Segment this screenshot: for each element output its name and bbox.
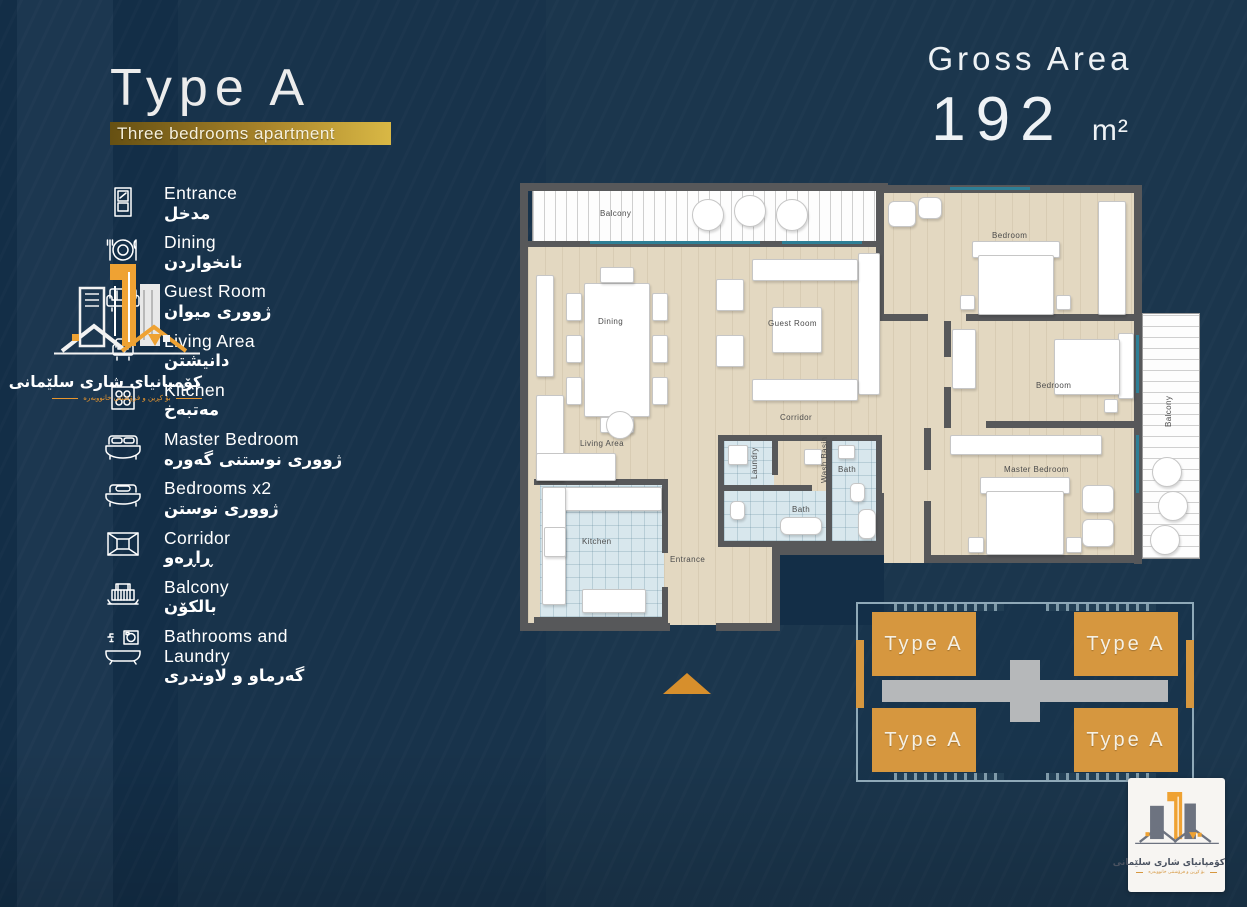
toilet <box>730 501 745 520</box>
balcony-right <box>1142 313 1200 559</box>
wardrobe <box>1098 201 1126 315</box>
legend-label-ku: ڕاڕەو <box>164 548 324 569</box>
balcony-chair <box>1150 525 1180 555</box>
tagline-line <box>52 398 78 399</box>
window <box>1136 435 1139 493</box>
unit-type-a-top-right: Type A <box>1074 612 1178 676</box>
dining-chair <box>566 293 582 321</box>
nightstand <box>1104 399 1118 413</box>
company-logo-graphic <box>52 256 202 366</box>
wardrobe <box>952 329 976 389</box>
legend-label-en: Bathrooms and Laundry <box>164 627 324 666</box>
bathtub <box>858 509 876 539</box>
gross-area-value: 192 m² <box>880 84 1180 155</box>
wall <box>772 547 780 631</box>
page-title: Type A <box>110 58 311 118</box>
bed-headboard <box>1118 333 1134 399</box>
wall <box>966 314 1142 321</box>
dining-chair <box>566 335 582 363</box>
bathtub-icon <box>98 627 148 665</box>
room-label-balcony-right: Balcony <box>1164 396 1173 427</box>
footprint-hatch <box>894 604 1004 611</box>
dining-chair <box>652 293 668 321</box>
double-bed-icon <box>98 430 148 460</box>
nightstand <box>1066 537 1082 553</box>
room-label-living-area: Living Area <box>580 439 624 448</box>
bathtub <box>780 517 822 535</box>
legend-row-master-bedroom: Master Bedroom ژووری نوستنی گەورە <box>98 430 398 470</box>
wall <box>772 435 778 475</box>
window <box>782 241 862 244</box>
company-name: کۆمپانیای شاری سلێمانی <box>52 373 202 391</box>
wall <box>1134 185 1142 321</box>
balcony-chair <box>1152 457 1182 487</box>
legend-row-bathrooms: Bathrooms and Laundry گەرماو و لاوندری <box>98 627 398 687</box>
tagline-line <box>176 398 202 399</box>
legend-label-en: Corridor <box>164 529 324 549</box>
room-label-laundry: Laundry <box>750 447 759 479</box>
wall <box>662 479 668 553</box>
wall <box>718 435 882 441</box>
legend-label-en: Entrance <box>164 184 324 204</box>
window <box>1136 335 1139 393</box>
wall <box>716 623 778 631</box>
legend-label-ku: مدخل <box>164 204 324 225</box>
tagline-text: بۆ کڕین و فرۆشتنی خانووبەرە <box>1148 870 1204 875</box>
balcony-chair <box>692 199 724 231</box>
wall <box>724 485 812 491</box>
room-label-kitchen: Kitchen <box>582 537 611 546</box>
nightstand <box>960 295 975 310</box>
wall <box>772 547 884 555</box>
stove <box>544 527 566 557</box>
legend-row-entrance: Entrance مدخل <box>98 184 398 224</box>
balcony-chair <box>776 199 808 231</box>
floor-plan: Balcony Dining Guest Room Corridor Livin… <box>520 183 1210 645</box>
wall <box>924 428 931 470</box>
room-label-bedroom2: Bedroom <box>1036 381 1071 390</box>
armchair <box>716 335 744 367</box>
building-footprint-diagram: Type A Type A Type A Type A <box>856 602 1194 782</box>
footprint-corridor-vertical <box>1010 660 1040 722</box>
legend-label-en: Master Bedroom <box>164 430 324 450</box>
washing-machine <box>728 445 748 465</box>
window <box>590 241 760 244</box>
room-label-bedroom1: Bedroom <box>992 231 1027 240</box>
tagline-line <box>1210 872 1217 873</box>
legend-label-en: Bedrooms x2 <box>164 479 324 499</box>
dining-chair <box>652 335 668 363</box>
nightstand <box>1056 295 1071 310</box>
balcony-chair <box>1158 491 1188 521</box>
corridor-icon <box>98 529 148 557</box>
room-label-balcony-top: Balcony <box>600 209 631 218</box>
dining-chair <box>566 377 582 405</box>
dining-chair <box>600 267 634 283</box>
wall <box>520 183 888 191</box>
gross-area-label: Gross Area <box>880 40 1180 78</box>
company-logo-card: کۆمپانیای شاری سلێمانی بۆ کڕین و فرۆشتنی… <box>1128 778 1225 892</box>
unit-type-a-bottom-right: Type A <box>1074 708 1178 772</box>
room-label-dining: Dining <box>598 317 623 326</box>
legend-label-ku: مەتبەخ <box>164 400 324 421</box>
wall <box>876 493 884 555</box>
room-label-guest-room: Guest Room <box>768 319 817 328</box>
legend-label-en: Balcony <box>164 578 324 598</box>
wall <box>944 321 951 357</box>
unit-type-a-bottom-left: Type A <box>872 708 976 772</box>
closet <box>950 435 1102 455</box>
tagline-line <box>1136 872 1143 873</box>
wall <box>520 183 528 630</box>
footprint-hatch <box>1046 604 1156 611</box>
entrance-arrow <box>663 673 711 694</box>
wash-basin <box>838 445 855 459</box>
wall <box>884 314 928 321</box>
coffee-table <box>772 307 822 353</box>
footprint-hatch <box>894 773 1004 780</box>
dining-chair <box>652 377 668 405</box>
gross-area-block: Gross Area 192 m² <box>880 40 1180 155</box>
armchair <box>716 279 744 311</box>
company-tagline: بۆ کڕین و فرۆشتنی خانووبەرە <box>52 394 202 402</box>
legend-row-corridor: Corridor ڕاڕەو <box>98 529 398 569</box>
company-logo-graphic <box>1134 786 1220 852</box>
legend-row-balcony: Balcony بالکۆن <box>98 578 398 618</box>
company-name: کۆمپانیای شاری سلێمانی <box>1128 858 1225 868</box>
side-table <box>606 411 634 439</box>
room-label-master-bedroom: Master Bedroom <box>1004 465 1069 474</box>
room-label-bath2: Bath <box>838 465 856 474</box>
toilet <box>850 483 865 502</box>
armchair <box>888 201 916 227</box>
legend-label-ku: بالکۆن <box>164 597 324 618</box>
closet <box>858 253 880 395</box>
balcony-icon <box>98 578 148 608</box>
balcony-chair <box>734 195 766 227</box>
company-tagline: بۆ کڕین و فرۆشتنی خانووبەرە <box>1136 870 1217 875</box>
tagline-text: بۆ کڕین و فرۆشتنی خانووبەرە <box>83 394 170 402</box>
sofa <box>752 379 858 401</box>
footprint-side-tab <box>1186 640 1194 708</box>
window <box>950 187 1030 190</box>
nightstand <box>968 537 984 553</box>
armchair <box>1082 519 1114 547</box>
wall <box>944 387 951 428</box>
company-logo: کۆمپانیای شاری سلێمانی بۆ کڕین و فرۆشتنی… <box>52 256 202 402</box>
poster-background: { "header": { "title": "Type A", "subtit… <box>0 0 1247 907</box>
sofa <box>752 259 858 281</box>
wall <box>924 555 1142 563</box>
armchair <box>1082 485 1114 513</box>
bed <box>986 491 1064 555</box>
armchair <box>918 197 942 219</box>
kitchen-island <box>582 589 646 613</box>
room-label-entrance: Entrance <box>670 555 705 564</box>
footprint-side-tab <box>856 640 864 708</box>
wall <box>520 623 670 631</box>
room-label-bath1: Bath <box>792 505 810 514</box>
door-icon <box>98 184 148 220</box>
single-bed-icon <box>98 479 148 507</box>
legend-row-bedrooms: Bedrooms x2 ژووری نوستن <box>98 479 398 519</box>
bed <box>978 255 1054 315</box>
unit-type-a-top-left: Type A <box>872 612 976 676</box>
gross-area-unit: m² <box>1092 114 1129 147</box>
legend-label-ku: گەرماو و لاوندری <box>164 666 324 687</box>
sofa-l <box>536 453 616 481</box>
legend-label-ku: ژووری نوستن <box>164 499 324 520</box>
page-subtitle: Three bedrooms apartment <box>110 122 391 145</box>
wall <box>986 421 1142 428</box>
wall <box>924 501 931 563</box>
room-label-wash-basin: Wash Basin <box>820 437 829 483</box>
legend-label-en: Dining <box>164 233 324 253</box>
room-label-corridor: Corridor <box>780 413 812 422</box>
closet <box>536 275 554 377</box>
legend-label-ku: ژووری نوستنی گەورە <box>164 450 342 471</box>
dining-table <box>584 283 650 417</box>
